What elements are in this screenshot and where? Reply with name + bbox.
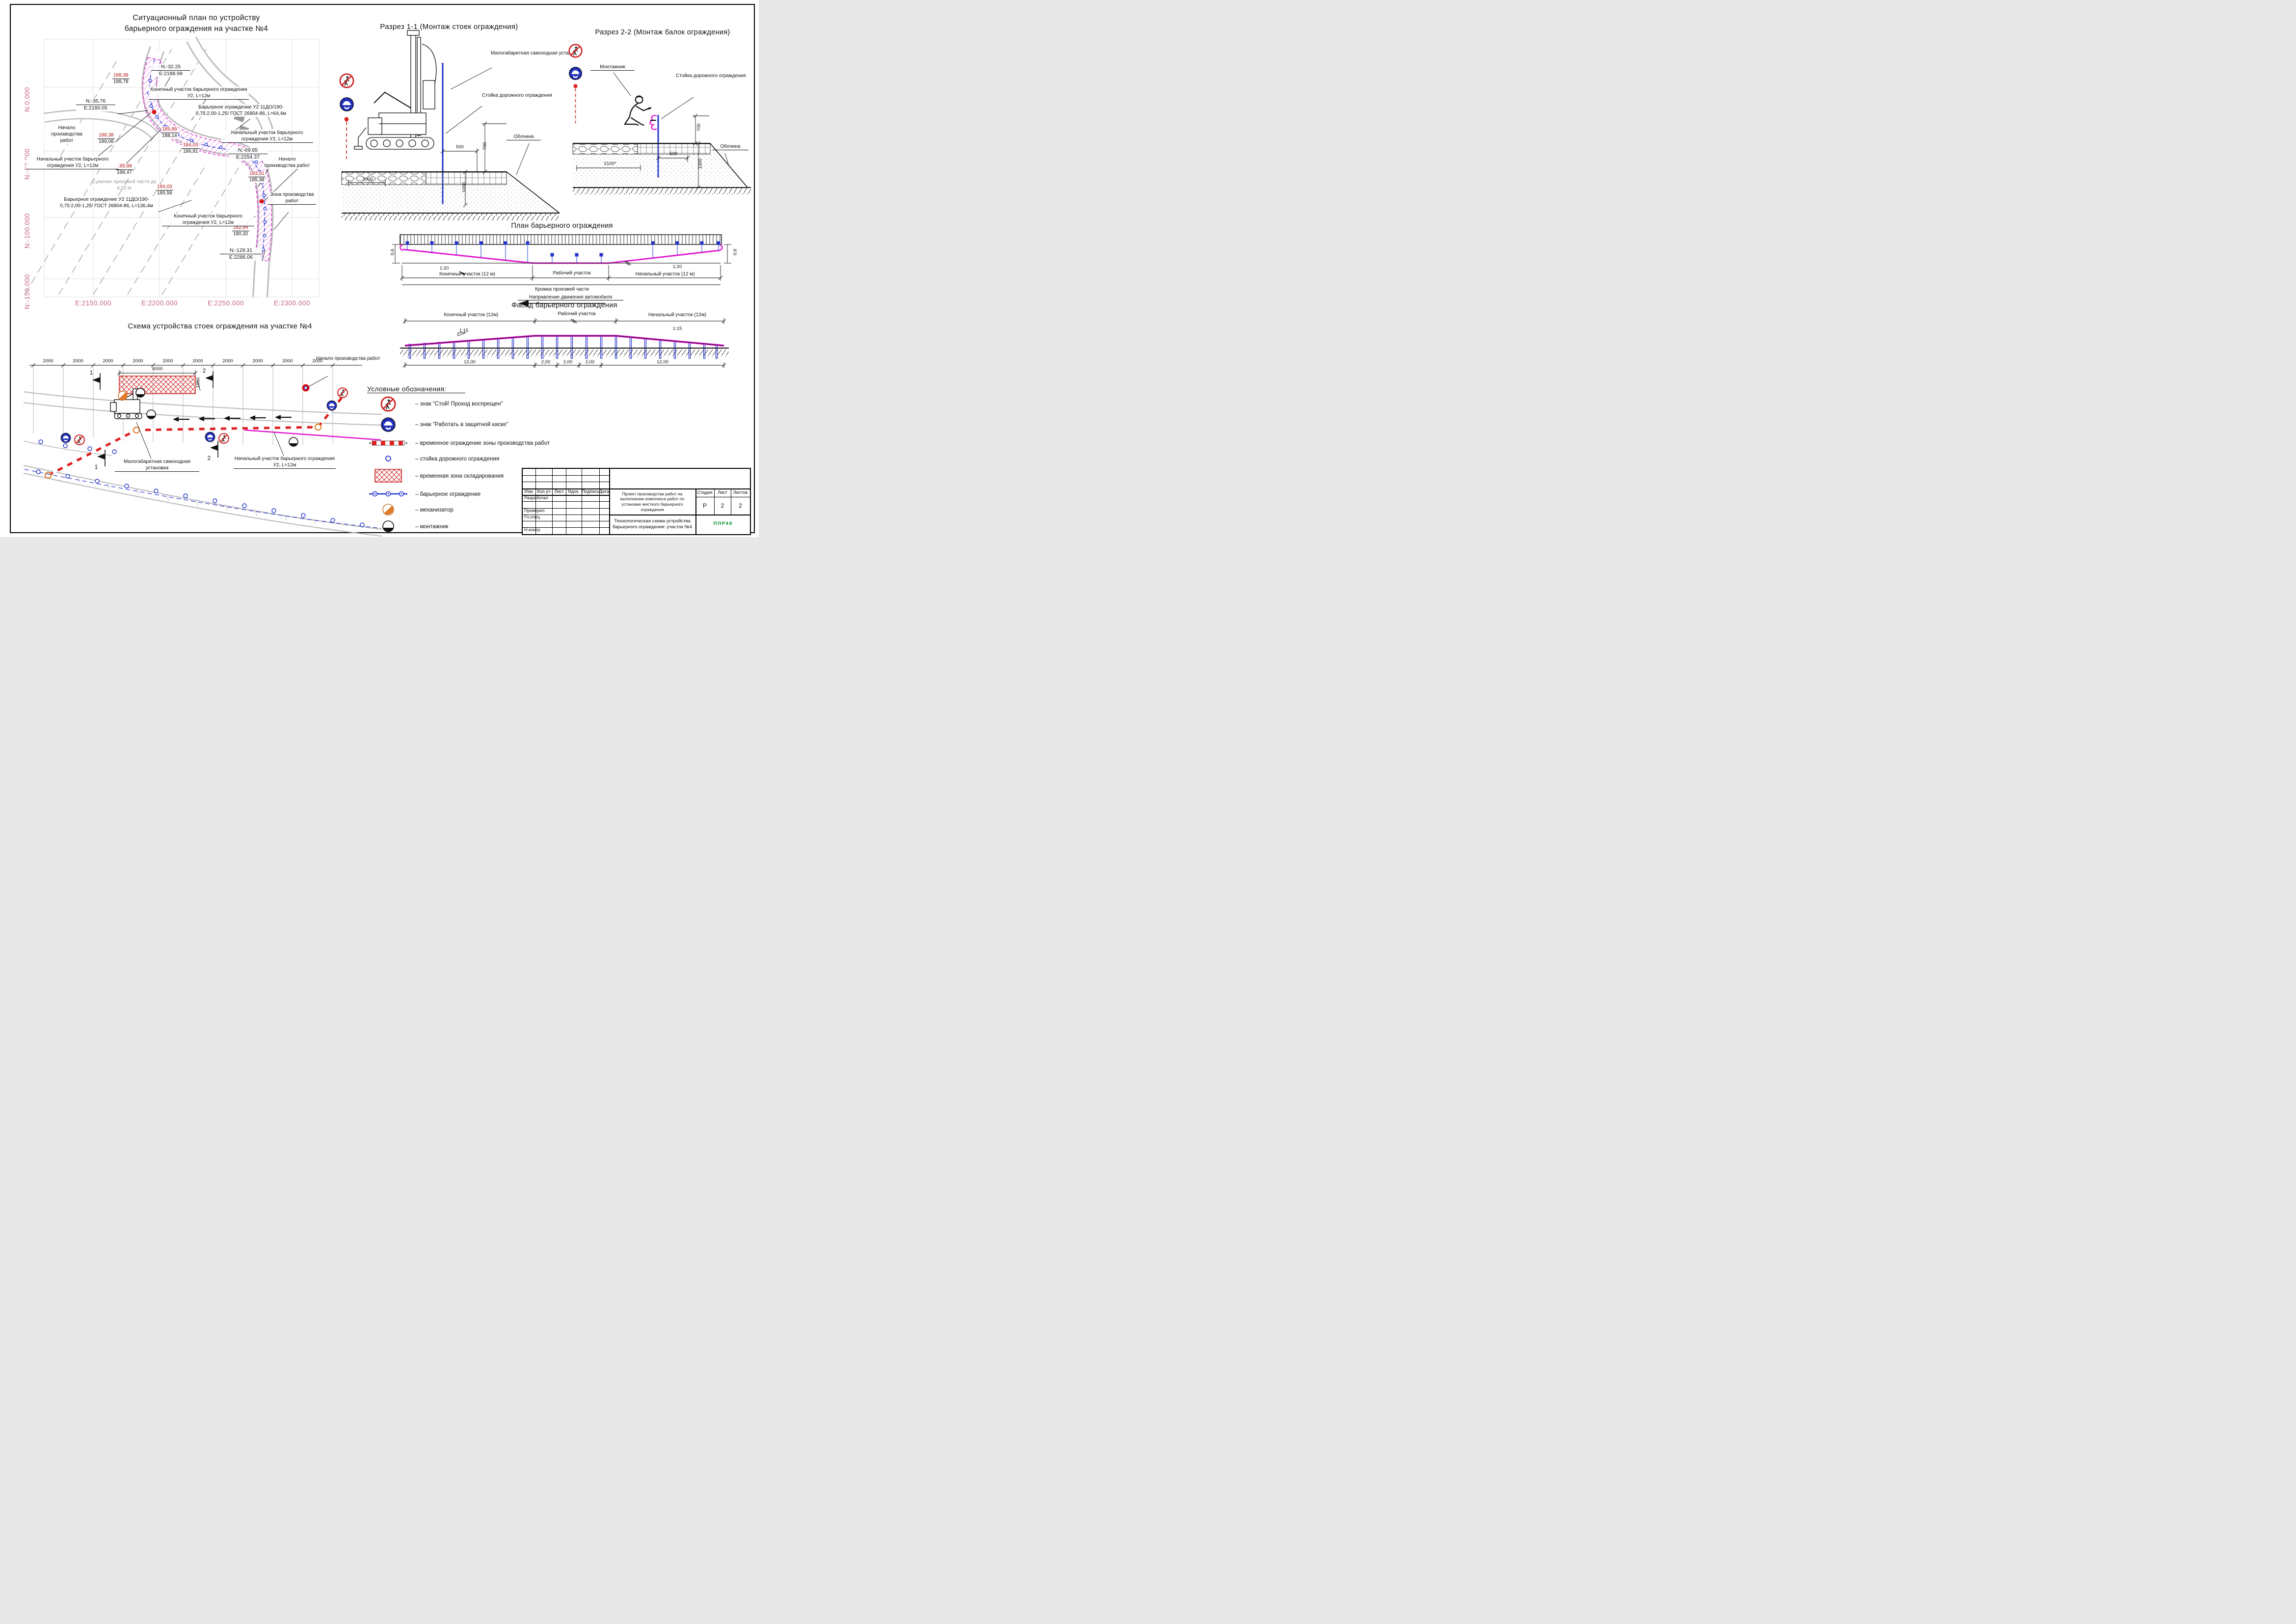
label-barrier-64: Барьерное ограждение У2 11ДО/190-0,75:2,… — [194, 104, 288, 117]
coord-callout-1: N:-32.25E:2188.99 — [151, 64, 190, 77]
elevation-2: 188,38189,08 — [98, 133, 115, 145]
tb-sheets-header: Листов — [731, 489, 750, 496]
facade-dim-12-left: 12,00 — [455, 359, 484, 365]
scheme-machine-label: Малогабаритная самоходная установка — [115, 459, 199, 472]
elevation-8: 182,94180,32 — [232, 225, 249, 237]
coord-callout-4: N:-129.31E:2286.06 — [220, 247, 262, 261]
scheme-drawing — [19, 318, 384, 535]
dim-06-right: 0,6 — [733, 246, 738, 259]
rail — [400, 245, 722, 263]
work-start-marker — [302, 376, 328, 392]
label-work-start-left: Начало производства работ — [44, 125, 89, 144]
new-barrier-line — [244, 430, 381, 440]
company-logo: ППР48 — [696, 515, 749, 533]
scheme-start-label: Начало производства работ — [316, 355, 371, 362]
work-start-marker-left — [152, 110, 157, 114]
tb-row-glspec: Гл.спец. — [523, 514, 553, 520]
axis-label-e2150: E:2150.000 — [71, 299, 115, 307]
mark-2-top: 2 — [199, 367, 209, 374]
dim-2000-1: 2000 — [37, 358, 59, 364]
facade-end-label: Конечный участок (12м) — [427, 312, 515, 318]
dim-700: 700 — [696, 119, 702, 136]
elevation-5: 184,03186,81 — [182, 142, 199, 155]
axis-label-n150: N:-150.000 — [24, 250, 31, 309]
tb-stage-value: Р — [695, 497, 714, 514]
facade-dim-2-c: 2,00 — [580, 359, 600, 365]
top-dim — [403, 318, 726, 324]
tb-col-koluch: Кол.уч — [535, 489, 552, 495]
dim-2000-2: 2000 — [67, 358, 89, 364]
tb-row-nkontr: Н.контр. — [523, 527, 553, 533]
section-start-label: Начальный участок (12 м) — [621, 271, 709, 277]
label-end-section-bottom: Конечный участок барьерного ограждения У… — [162, 213, 254, 226]
storage-zone-icon — [375, 469, 401, 482]
post-installation-scheme: Схема устройства стоек ограждения на уча… — [19, 318, 384, 535]
dim-2000-4: 2000 — [127, 358, 149, 364]
existing-barrier-line — [25, 440, 381, 528]
legend-item-8: – монтажник — [415, 523, 448, 531]
dim-2000-3: 2000 — [97, 358, 119, 364]
facade-slope-left: 1:15 — [452, 328, 476, 333]
dim-1000-h: 1000 — [355, 177, 380, 182]
no-pedestrian-sign-icon — [569, 45, 582, 57]
section-2-2: Разрез 2-2 (Монтаж балок ограждения) — [567, 15, 756, 211]
axis-label-e2250: E:2250.000 — [204, 299, 248, 307]
dim-2000-7: 2000 — [217, 358, 239, 364]
situational-plan-title-line1: Ситуационный план по устройству — [88, 14, 304, 23]
label-post: Стойка дорожного ограждения — [482, 92, 546, 99]
direction-label: Направление движения автомобиля — [518, 295, 623, 300]
tb-sheet-header: Лист — [714, 489, 731, 496]
coord-callout-2: N:-35.76E:2180.05 — [76, 98, 115, 111]
tb-col-list: Лист — [552, 489, 566, 495]
facade-work-label: Рабочий участок — [542, 311, 611, 317]
section-work-label: Рабочий участок — [533, 271, 611, 276]
facade-slope-right: 1:15 — [665, 326, 690, 331]
installer-icons — [136, 388, 298, 446]
dim-1000: 1000 — [698, 154, 703, 174]
installer-icon — [383, 521, 394, 532]
road-edge-hatch — [400, 235, 721, 244]
axis-label-e2300: E:2300.000 — [270, 299, 314, 307]
tb-project: Проект производства работ на выполнение … — [611, 490, 694, 514]
title-block: Изм. Кол.уч Лист Nдок. Подпись Дата Разр… — [522, 468, 751, 535]
helmet-sign-icon — [61, 433, 71, 443]
ground-hatch — [400, 349, 729, 357]
beam-bracket — [650, 115, 657, 129]
barrier-facade: Фасад барьерного ограждения — [390, 300, 739, 374]
facade-dim-12-right: 12,00 — [648, 359, 677, 365]
dim-2000-5: 2000 — [157, 358, 179, 364]
dim-06-left: 0,6 — [390, 246, 396, 259]
axis-label-n0: N:0.000 — [24, 63, 31, 112]
drawing-sheet: Ситуационный план по устройству барьерно… — [0, 0, 759, 537]
legend-item-2: – знак "Работать в защитной каске" — [415, 421, 508, 429]
section-1-1-drawing — [334, 10, 564, 226]
dim-1000-v: 1000 — [462, 178, 467, 197]
label-shoulder: Обочина — [712, 143, 748, 150]
legend-item-7: – механизатор — [415, 507, 454, 514]
section-1-1: Разрез 1-1 (Монтаж стоек ограждения) — [334, 10, 564, 226]
situational-plan-title-line2: барьерного ограждения на участке №4 — [88, 25, 304, 33]
label-machine: Малогабаритная самоходная установка — [491, 50, 561, 56]
red-flag-marker-icon — [345, 117, 349, 159]
facade-dim-2-a: 2,00 — [536, 359, 556, 365]
dim-500: 500 — [661, 151, 686, 157]
helmet-sign-icon — [381, 418, 395, 432]
label-shoulder: Обочина — [507, 134, 541, 140]
scheme-startsec-label: Начальный участок барьерного ограждения … — [234, 456, 336, 469]
barrier-icon — [369, 492, 407, 496]
situational-plan: Ситуационный план по устройству барьерно… — [15, 9, 334, 317]
axis-label-n50: N:-50.000 — [24, 126, 31, 180]
coord-callout-3: N:-69.65E:2254.37 — [228, 147, 267, 161]
dim-500: 500 — [448, 144, 472, 150]
section-2-2-drawing — [567, 15, 756, 211]
no-pedestrian-sign-icon — [219, 433, 229, 443]
label-worker: Монтажник — [590, 64, 635, 71]
elevation-7: 183,51185,38 — [248, 171, 266, 183]
label-narrowing: Сужение проезжей части до 6,00 м — [91, 179, 157, 191]
dim-6000: 6000 — [144, 366, 171, 372]
legend-icons — [367, 384, 411, 535]
edge-label: Кромка проезжей части — [518, 287, 606, 292]
dim-1000: 1000 — [196, 373, 201, 393]
rail — [405, 336, 724, 346]
dim-line — [29, 363, 362, 367]
no-pedestrian-sign-icon — [340, 74, 353, 87]
elevation-6: 184,03185,58 — [156, 184, 173, 196]
storage-zone — [119, 376, 195, 394]
tb-col-izm: Изм. — [523, 489, 535, 495]
legend-item-3: – временное ограждение зоны производства… — [415, 440, 550, 447]
helmet-sign-icon — [205, 432, 215, 442]
label-work-start-right: Начало производства работ — [263, 156, 311, 169]
tb-stage-header: Стадия — [695, 489, 714, 496]
tb-row-razrabotal: Разработал — [523, 495, 553, 501]
dim-2100: 2100* — [595, 161, 625, 166]
red-flag-marker-icon — [573, 84, 577, 123]
label-work-zone: Зона производства работ — [268, 191, 316, 205]
legend-item-4: – стойка дорожного ограждения — [415, 456, 499, 463]
slope-right: 1:20 — [665, 264, 690, 270]
tb-row-proveril: Проверил — [523, 508, 553, 514]
label-start-section-right: Начальный участок барьерного ограждения … — [221, 130, 313, 143]
mark-1-bottom: 1 — [91, 463, 101, 470]
helmet-sign-icon — [569, 67, 582, 80]
no-pedestrian-sign-icon — [381, 397, 395, 411]
dim-700: 700 — [482, 137, 488, 155]
tb-sheet-value: 2 — [714, 497, 731, 514]
no-pedestrian-sign-icon — [338, 388, 347, 398]
tb-sheets-value: 2 — [731, 497, 750, 514]
label-post: Стойка дорожного ограждения — [676, 73, 735, 79]
tb-doc-title: Технологическая схема устройства барьерн… — [611, 516, 694, 533]
elevation-1: 188,38188,78 — [112, 73, 130, 85]
tb-col-podpis: Подпись — [582, 489, 599, 495]
dim-2000-6: 2000 — [187, 358, 209, 364]
installer-figure — [625, 96, 651, 126]
facade-start-label: Начальный участок (12м) — [633, 312, 721, 318]
label-start-section-left: Начальный участок барьерного ограждения … — [27, 156, 119, 169]
temp-fence-icon — [370, 441, 407, 445]
label-end-section-top: Конечный участок барьерного ограждения У… — [149, 86, 249, 100]
helmet-sign-icon — [327, 401, 337, 410]
mark-1-top: 1 — [86, 369, 96, 376]
legend-item-1: – знак "Стой! Проход воспрещен" — [415, 401, 503, 408]
no-pedestrian-sign-icon — [75, 435, 84, 445]
road-post-icon — [386, 456, 391, 461]
slope-left: 1:20 — [432, 266, 456, 271]
barrier-plan-view: План барьерного ограждения — [385, 220, 741, 308]
tb-col-ndok: Nдок. — [566, 489, 582, 495]
axis-label-e2200: E:2200.000 — [137, 299, 182, 307]
tb-col-data: Дата — [599, 489, 609, 495]
dim-2000-9: 2000 — [277, 358, 298, 364]
legend-item-5: – временная зона складирования — [415, 473, 504, 480]
facade-dim-2-b: 2,00 — [558, 359, 578, 365]
legend-item-6: – барьерное ограждение — [415, 491, 481, 498]
piling-machine — [354, 30, 436, 149]
label-barrier-136: Барьерное ограждение У2 11ДО/190-0,75:2,… — [59, 196, 154, 209]
elevation-3: 185,88188,14 — [161, 127, 178, 139]
work-start-marker-right — [260, 199, 264, 204]
helmet-sign-icon — [340, 98, 353, 111]
dim-2000-8: 2000 — [247, 358, 268, 364]
axis-label-n100: N:-100.000 — [24, 189, 31, 248]
machine-operator-icon — [118, 391, 127, 400]
section-end-label: Конечный участок (12 м) — [423, 271, 511, 277]
mark-2-bottom: 2 — [204, 455, 214, 461]
machine-operator-icon — [383, 504, 394, 515]
